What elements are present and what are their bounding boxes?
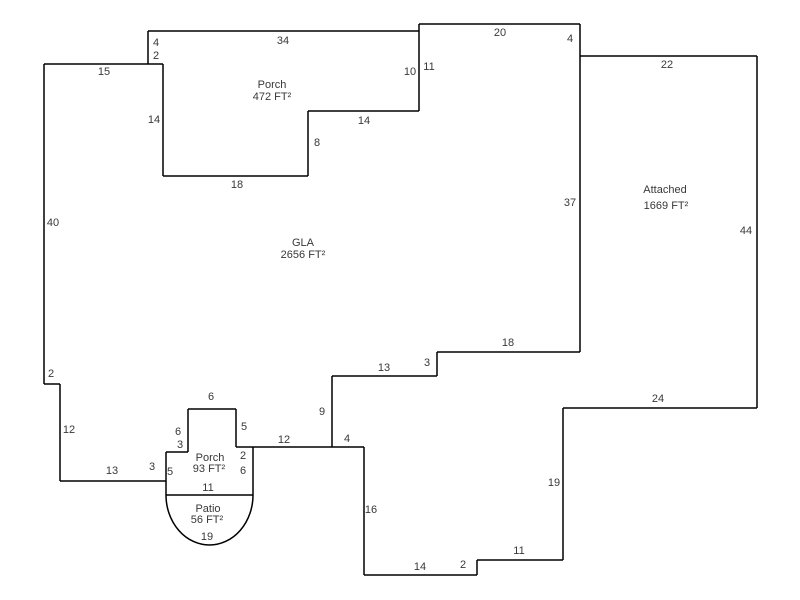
dimension-label: 4 [567,33,573,45]
dimension-label: 11 [513,545,524,557]
dimension-label: 16 [365,504,377,516]
dimension-label: 11 [423,61,434,73]
dimension-label: 19 [548,477,560,489]
dimension-label: 2 [153,50,159,62]
sketch-canvas: 3442151418814101120422443740212133536652… [0,0,800,600]
dimension-label: 34 [277,35,289,47]
dimension-label: 19 [201,531,213,543]
area-name-label: Attached [643,184,686,196]
area-value-label: 472 FT² [253,91,292,103]
dimension-label: 13 [106,465,118,477]
area-value-label: 93 FT² [193,463,226,475]
dimension-label: 2 [240,450,246,462]
dimension-label: 18 [502,337,514,349]
dimension-label: 24 [652,393,664,405]
dimension-label: 14 [414,561,426,573]
dimension-label: 12 [63,424,75,436]
dimension-label: 44 [740,225,752,237]
dimension-label: 15 [98,66,110,78]
dimension-label: 18 [231,179,243,191]
floor-plan-sketch: 3442151418814101120422443740212133536652… [0,0,800,600]
dimension-label: 20 [494,27,506,39]
dimension-label: 40 [47,217,59,229]
dimension-label: 2 [460,559,466,571]
dimension-label: 10 [404,66,416,78]
area-name-label: GLA [292,237,315,249]
dimension-label: 4 [344,433,350,445]
dimension-label: 6 [208,391,214,403]
dimension-label: 9 [319,406,325,418]
dimension-label: 6 [175,426,181,438]
dimension-label: 6 [240,465,246,477]
dimension-label: 14 [358,115,370,127]
dimension-label: 13 [378,362,390,374]
dimension-label: 5 [241,421,247,433]
dimension-label: 5 [167,466,173,478]
dimension-label: 3 [149,461,155,473]
dimension-label: 37 [564,197,576,209]
dimension-label: 3 [424,357,430,369]
area-name-label: Porch [258,79,287,91]
dimension-label: 3 [177,439,183,451]
area-value-label: 2656 FT² [281,249,326,261]
dimension-label: 8 [314,137,320,149]
dimension-label: 4 [153,37,159,49]
dimension-label: 2 [48,368,54,380]
dimension-label: 22 [661,59,673,71]
dimension-label: 14 [148,114,160,126]
area-value-label: 56 FT² [191,514,224,526]
dimension-label: 11 [202,482,213,494]
area-value-label: 1669 FT² [644,200,689,212]
dimension-label: 12 [278,434,290,446]
